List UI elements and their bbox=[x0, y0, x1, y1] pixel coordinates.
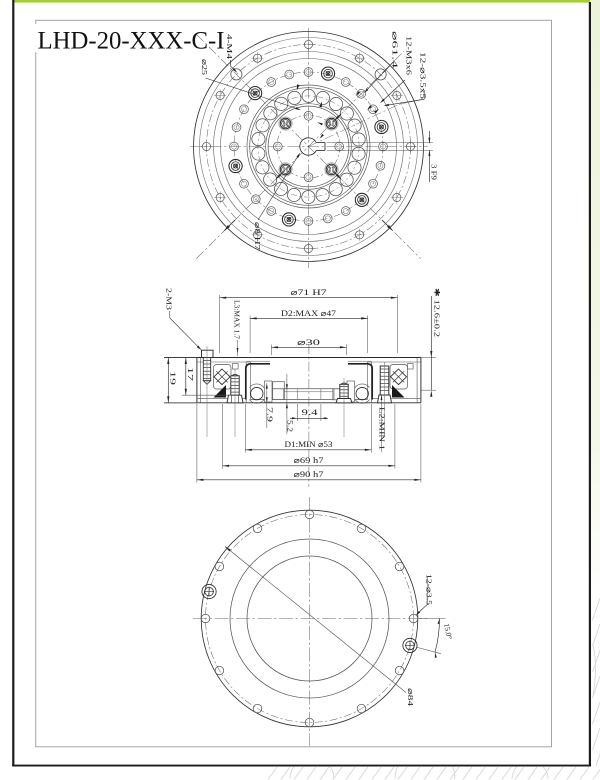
svg-text:9.4: 9.4 bbox=[302, 408, 318, 417]
svg-text:4-M4: 4-M4 bbox=[225, 34, 234, 59]
svg-text:⌀8 H7: ⌀8 H7 bbox=[253, 222, 262, 250]
svg-text:L3:MAX 1.7: L3:MAX 1.7 bbox=[233, 300, 241, 340]
svg-text:⌀69 h7: ⌀69 h7 bbox=[294, 456, 324, 465]
svg-text:⌀84: ⌀84 bbox=[406, 688, 415, 706]
svg-text:⌀30: ⌀30 bbox=[297, 338, 320, 347]
svg-text:17: 17 bbox=[186, 367, 194, 382]
svg-text:3 F9: 3 F9 bbox=[430, 164, 438, 181]
svg-text:✱ 12.6±0.2: ✱ 12.6±0.2 bbox=[433, 288, 442, 337]
svg-text:12-⌀3.5: 12-⌀3.5 bbox=[425, 574, 434, 605]
svg-text:D2:MAX ⌀47: D2:MAX ⌀47 bbox=[281, 309, 336, 318]
svg-text:7.9: 7.9 bbox=[266, 407, 274, 423]
svg-text:L2:MIN 1: L2:MIN 1 bbox=[378, 407, 386, 451]
svg-text:19: 19 bbox=[169, 371, 177, 386]
svg-text:5.2: 5.2 bbox=[286, 420, 294, 433]
svg-text:2-M3: 2-M3 bbox=[165, 288, 174, 310]
svg-text:⌀90 h7: ⌀90 h7 bbox=[294, 470, 324, 479]
svg-text:12-M3x6: 12-M3x6 bbox=[405, 36, 414, 75]
svg-text:12-⌀3.5x5: 12-⌀3.5x5 bbox=[419, 52, 428, 99]
svg-text:⌀71 H7: ⌀71 H7 bbox=[291, 288, 327, 297]
svg-text:D1:MIN ⌀53: D1:MIN ⌀53 bbox=[285, 440, 333, 449]
svg-text:⌀61.4: ⌀61.4 bbox=[391, 31, 400, 69]
svg-text:LHD-20-XXX-C-I: LHD-20-XXX-C-I bbox=[38, 28, 225, 55]
svg-text:⌀25: ⌀25 bbox=[200, 59, 209, 75]
